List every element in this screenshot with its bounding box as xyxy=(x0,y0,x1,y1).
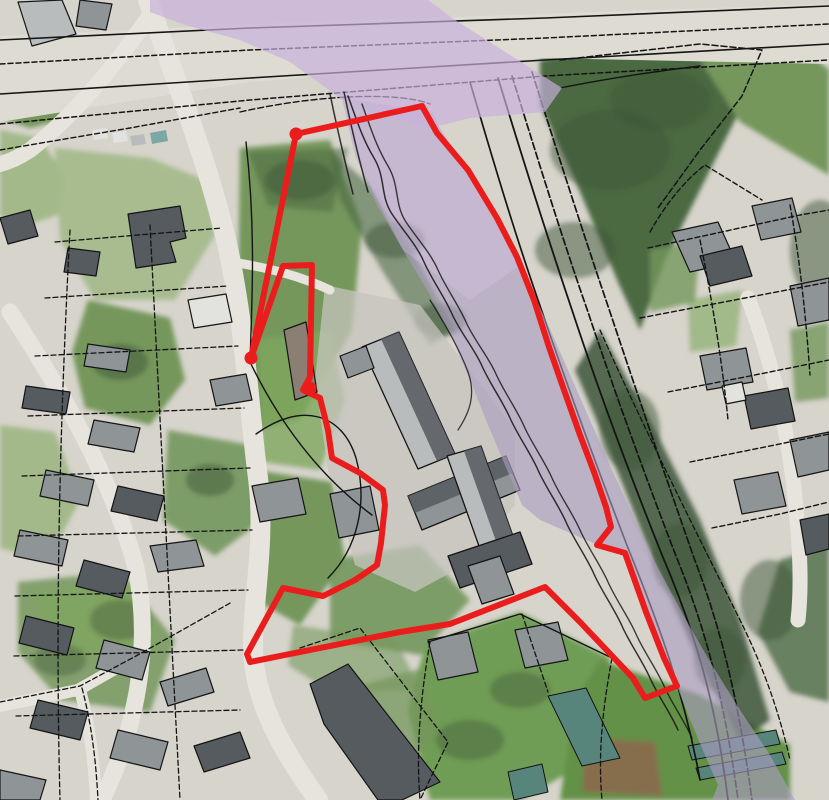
site-boundary-vertex xyxy=(245,352,258,365)
building xyxy=(515,622,568,668)
tree-blob xyxy=(610,70,710,130)
building xyxy=(210,374,252,406)
building xyxy=(76,0,112,30)
building xyxy=(744,388,795,429)
tree-blob xyxy=(740,560,800,640)
building xyxy=(150,540,204,572)
site-boundary-vertex xyxy=(290,128,303,141)
tree-blob xyxy=(600,390,660,470)
green-patch xyxy=(790,322,829,402)
tree-blob xyxy=(535,222,615,278)
aerial-map-canvas[interactable] xyxy=(0,0,829,800)
building xyxy=(64,248,100,276)
building xyxy=(252,478,306,522)
building xyxy=(800,514,829,555)
map-viewport[interactable] xyxy=(0,0,829,800)
car xyxy=(130,134,146,146)
building xyxy=(188,294,232,328)
tree-blob xyxy=(265,160,335,200)
car xyxy=(112,131,128,143)
site-boundary-vertex xyxy=(304,382,317,395)
building xyxy=(752,198,801,240)
building xyxy=(330,486,379,538)
tree-blob xyxy=(490,672,550,708)
building xyxy=(734,472,786,514)
